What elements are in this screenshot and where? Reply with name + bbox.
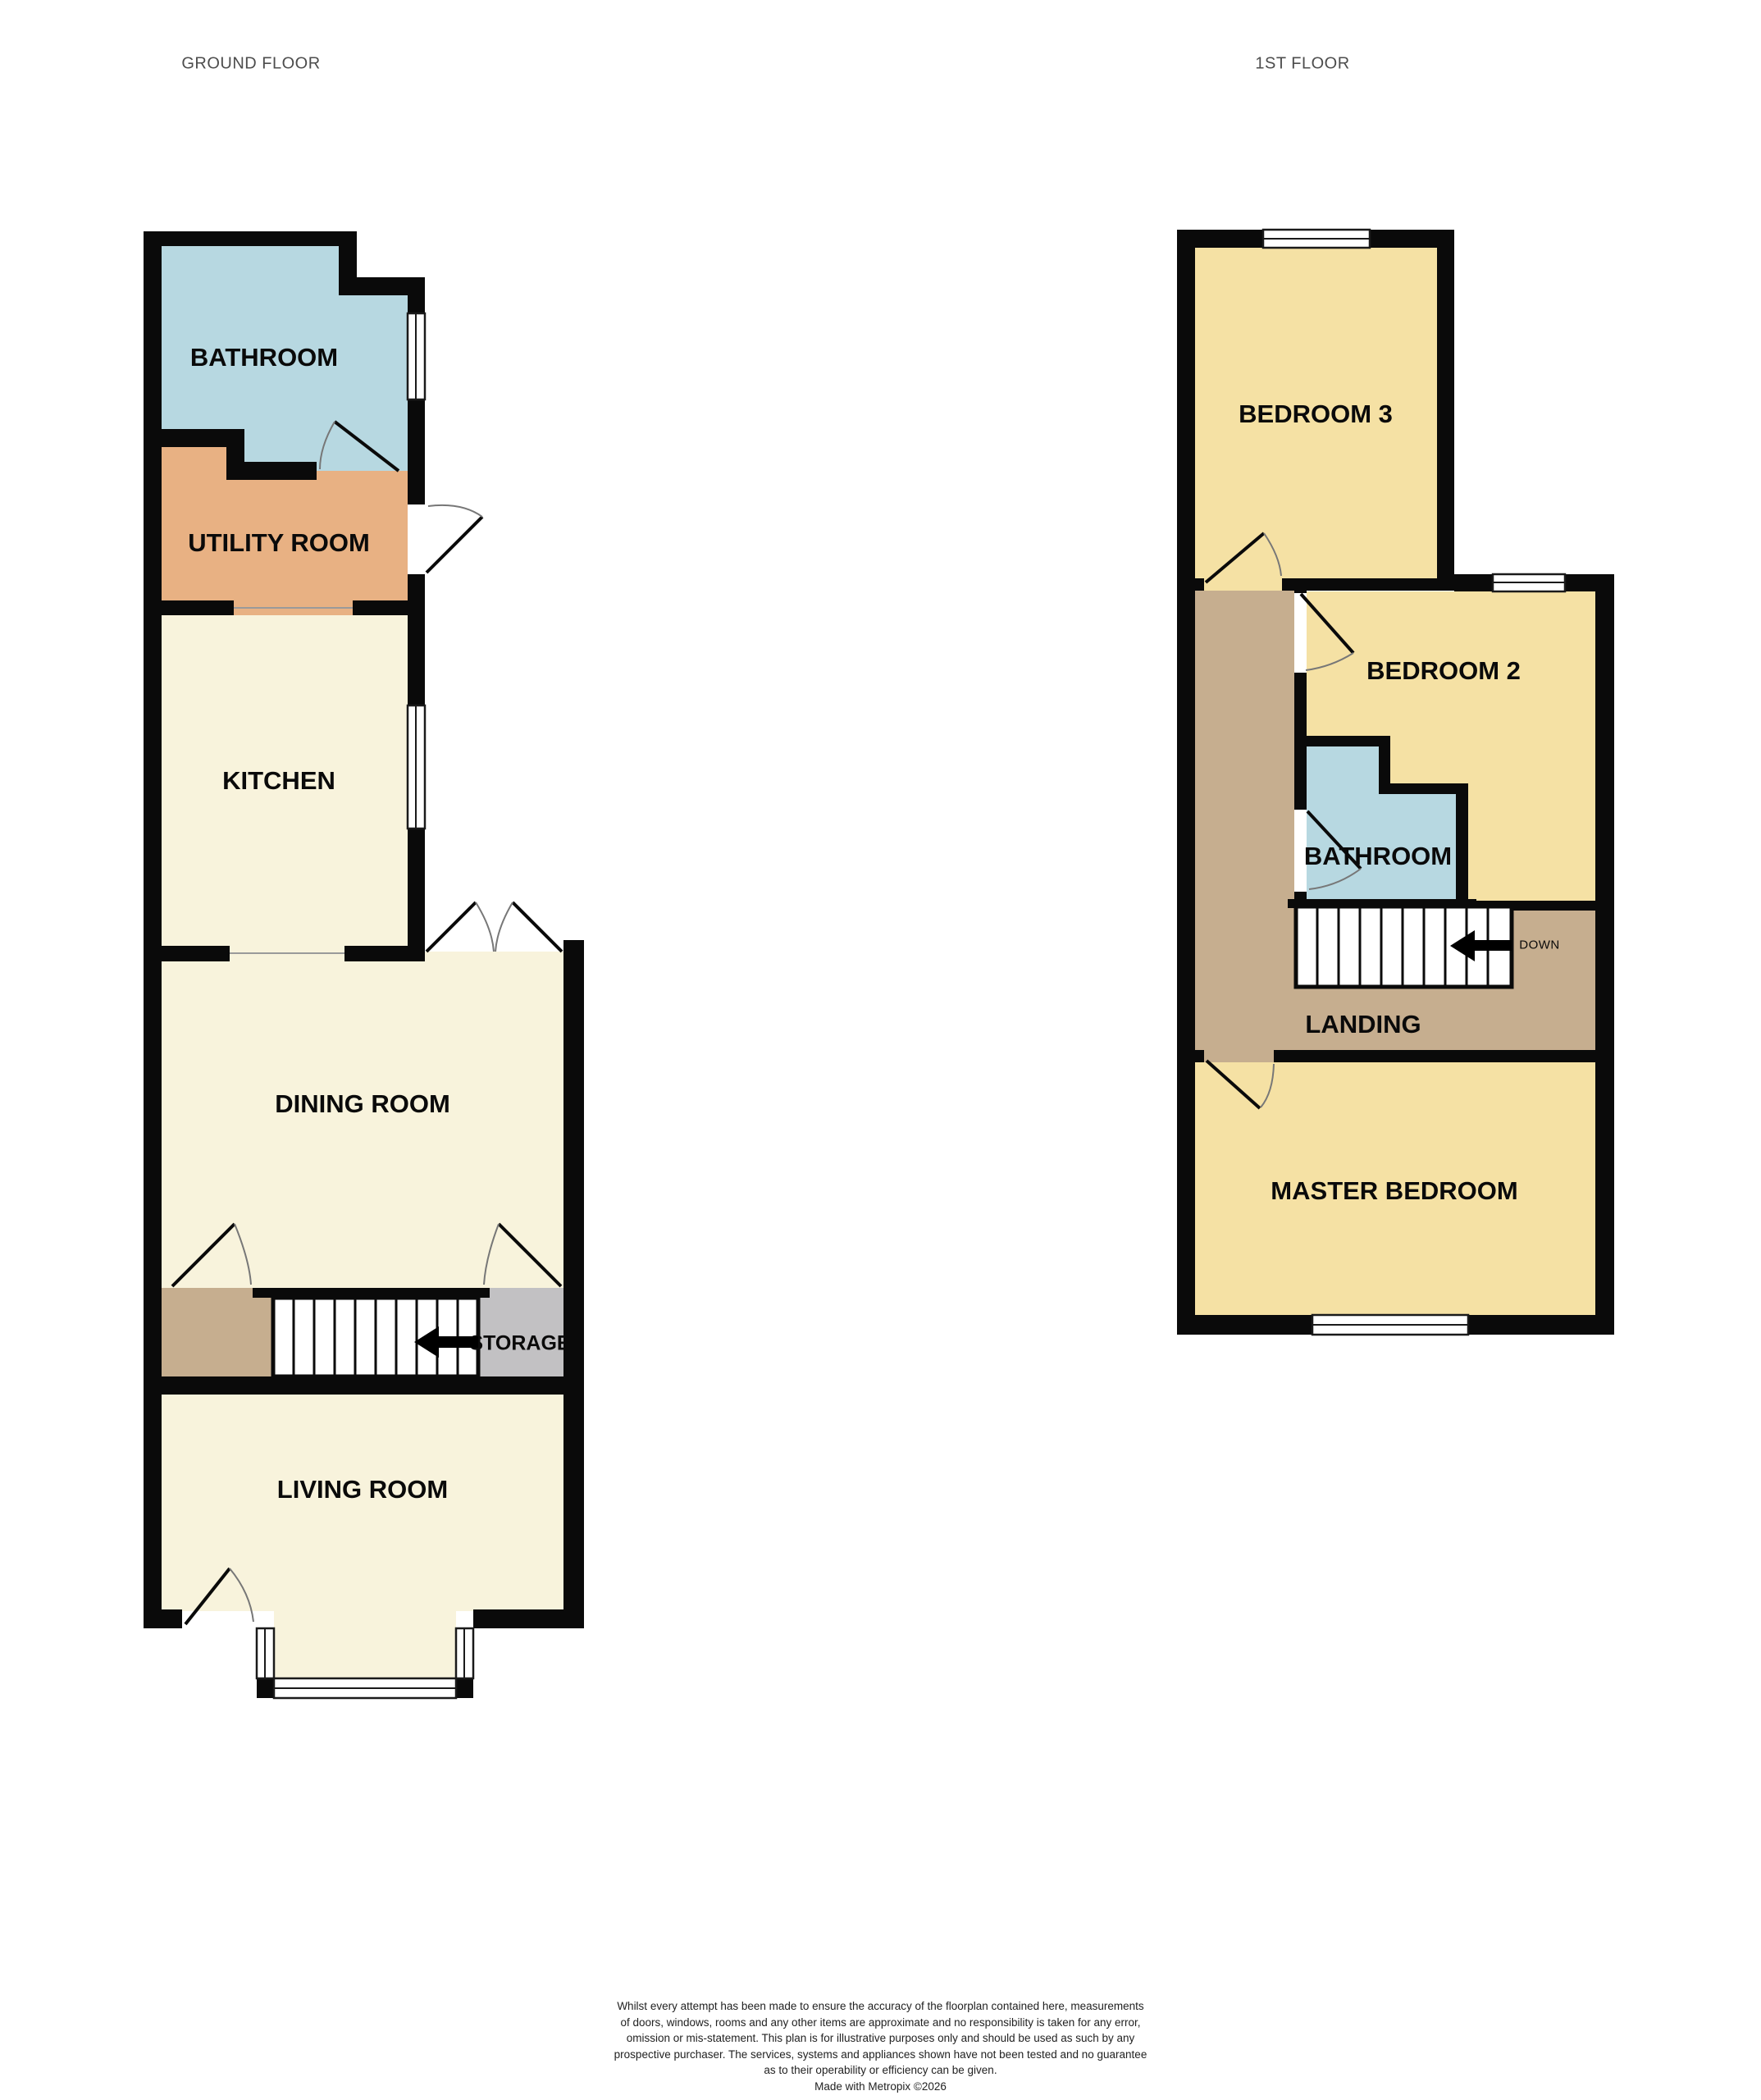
metropix-credit: Made with Metropix ©2026 — [0, 2079, 1761, 2095]
wall — [408, 829, 425, 961]
wall — [1294, 578, 1307, 593]
utility-room-label: UTILITY ROOM — [188, 528, 370, 558]
wall — [339, 231, 357, 295]
french-door-right — [495, 902, 562, 952]
wall — [257, 1678, 274, 1698]
wall — [226, 462, 317, 480]
wall — [1595, 574, 1614, 1335]
wall — [1437, 230, 1454, 591]
wall — [408, 399, 425, 504]
bathroom-room-shape — [162, 246, 339, 297]
arrow-shaft — [1471, 940, 1512, 951]
first-floor-title: 1ST FLOOR — [1255, 55, 1349, 74]
utility-room-shape — [162, 447, 226, 471]
disclaimer-line: Whilst every attempt has been made to en… — [0, 1998, 1761, 2015]
wall — [144, 1609, 182, 1628]
floorplan-drawing — [0, 0, 1761, 2100]
bedroom3-label: BEDROOM 3 — [1239, 399, 1393, 429]
disclaimer-line: of doors, windows, rooms and any other i… — [0, 2015, 1761, 2031]
wall — [408, 574, 425, 705]
disclaimer-text: Whilst every attempt has been made to en… — [0, 1998, 1761, 2094]
storage-stairs-arrow-icon — [414, 1326, 478, 1358]
bay-window-floor-shape — [274, 1609, 456, 1682]
wall — [144, 231, 357, 246]
wall — [144, 1376, 584, 1395]
wall — [1294, 746, 1307, 810]
first-floor-plan — [1177, 230, 1614, 1335]
living-room-label: LIVING ROOM — [277, 1475, 448, 1504]
dining-room-label: DINING ROOM — [275, 1089, 450, 1119]
storage-label: STORAGE — [469, 1332, 570, 1356]
wall — [1282, 578, 1454, 591]
wall — [1294, 673, 1307, 736]
wall — [1177, 230, 1195, 1335]
wall — [1274, 1050, 1614, 1062]
bathroom-first-label: BATHROOM — [1304, 842, 1452, 871]
bedroom2-label: BEDROOM 2 — [1366, 656, 1521, 686]
down-arrow-icon — [1450, 930, 1512, 961]
wall — [456, 1678, 473, 1698]
french-door-left — [427, 902, 494, 952]
wall — [162, 946, 230, 961]
wall — [1379, 783, 1468, 794]
bathroom-label: BATHROOM — [190, 343, 338, 372]
down-label: DOWN — [1519, 938, 1560, 952]
wall — [563, 940, 584, 1628]
disclaimer-line: prospective purchaser. The services, sys… — [0, 2047, 1761, 2063]
landing-label: LANDING — [1305, 1010, 1421, 1039]
arrow-shaft — [437, 1336, 478, 1348]
wall — [408, 277, 425, 313]
wall — [353, 600, 408, 615]
arrow-head — [414, 1326, 439, 1358]
wall — [473, 1609, 584, 1628]
utility-door — [427, 505, 482, 573]
wall — [1177, 1050, 1204, 1062]
disclaimer-line: omission or mis-statement. This plan is … — [0, 2030, 1761, 2047]
kitchen-label: KITCHEN — [222, 766, 335, 796]
master-bedroom-label: MASTER BEDROOM — [1271, 1176, 1517, 1206]
floorplan-page: GROUND FLOOR 1ST FLOOR BATHROOM UTILITY … — [0, 0, 1761, 2100]
wall — [1456, 783, 1468, 901]
wall — [1177, 578, 1204, 591]
wall — [1294, 736, 1390, 746]
hallway-shape — [162, 1288, 273, 1378]
wall — [162, 600, 234, 615]
disclaimer-line: as to their operability or efficiency ca… — [0, 2062, 1761, 2079]
wall — [144, 231, 162, 1628]
wall — [344, 946, 425, 961]
ground-floor-title: GROUND FLOOR — [181, 55, 320, 74]
